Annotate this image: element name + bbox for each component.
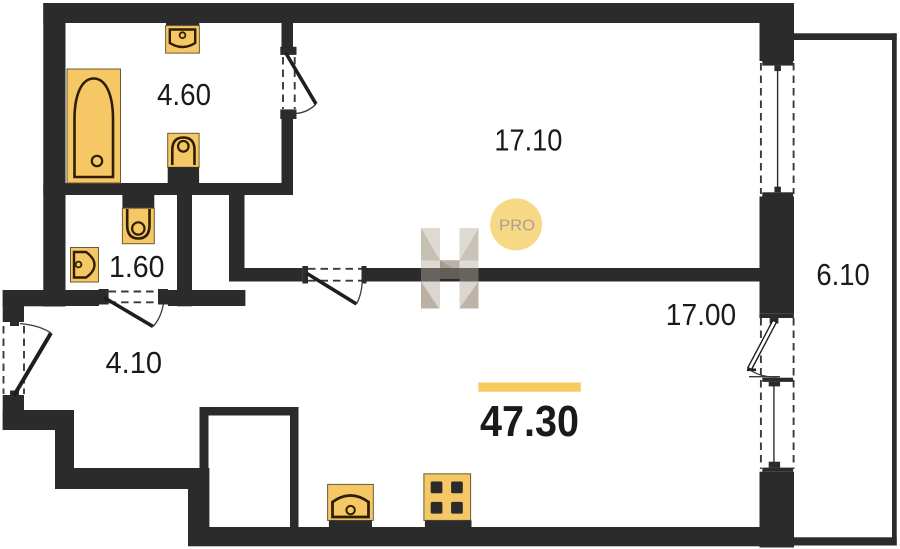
svg-text:17.00: 17.00: [666, 297, 736, 332]
svg-text:17.10: 17.10: [494, 123, 562, 158]
svg-text:47.30: 47.30: [480, 398, 579, 446]
svg-text:4.60: 4.60: [157, 77, 211, 112]
svg-text:4.10: 4.10: [106, 345, 163, 380]
svg-text:6.10: 6.10: [816, 257, 869, 292]
svg-text:PRO: PRO: [499, 217, 535, 234]
svg-text:1.60: 1.60: [109, 249, 165, 284]
